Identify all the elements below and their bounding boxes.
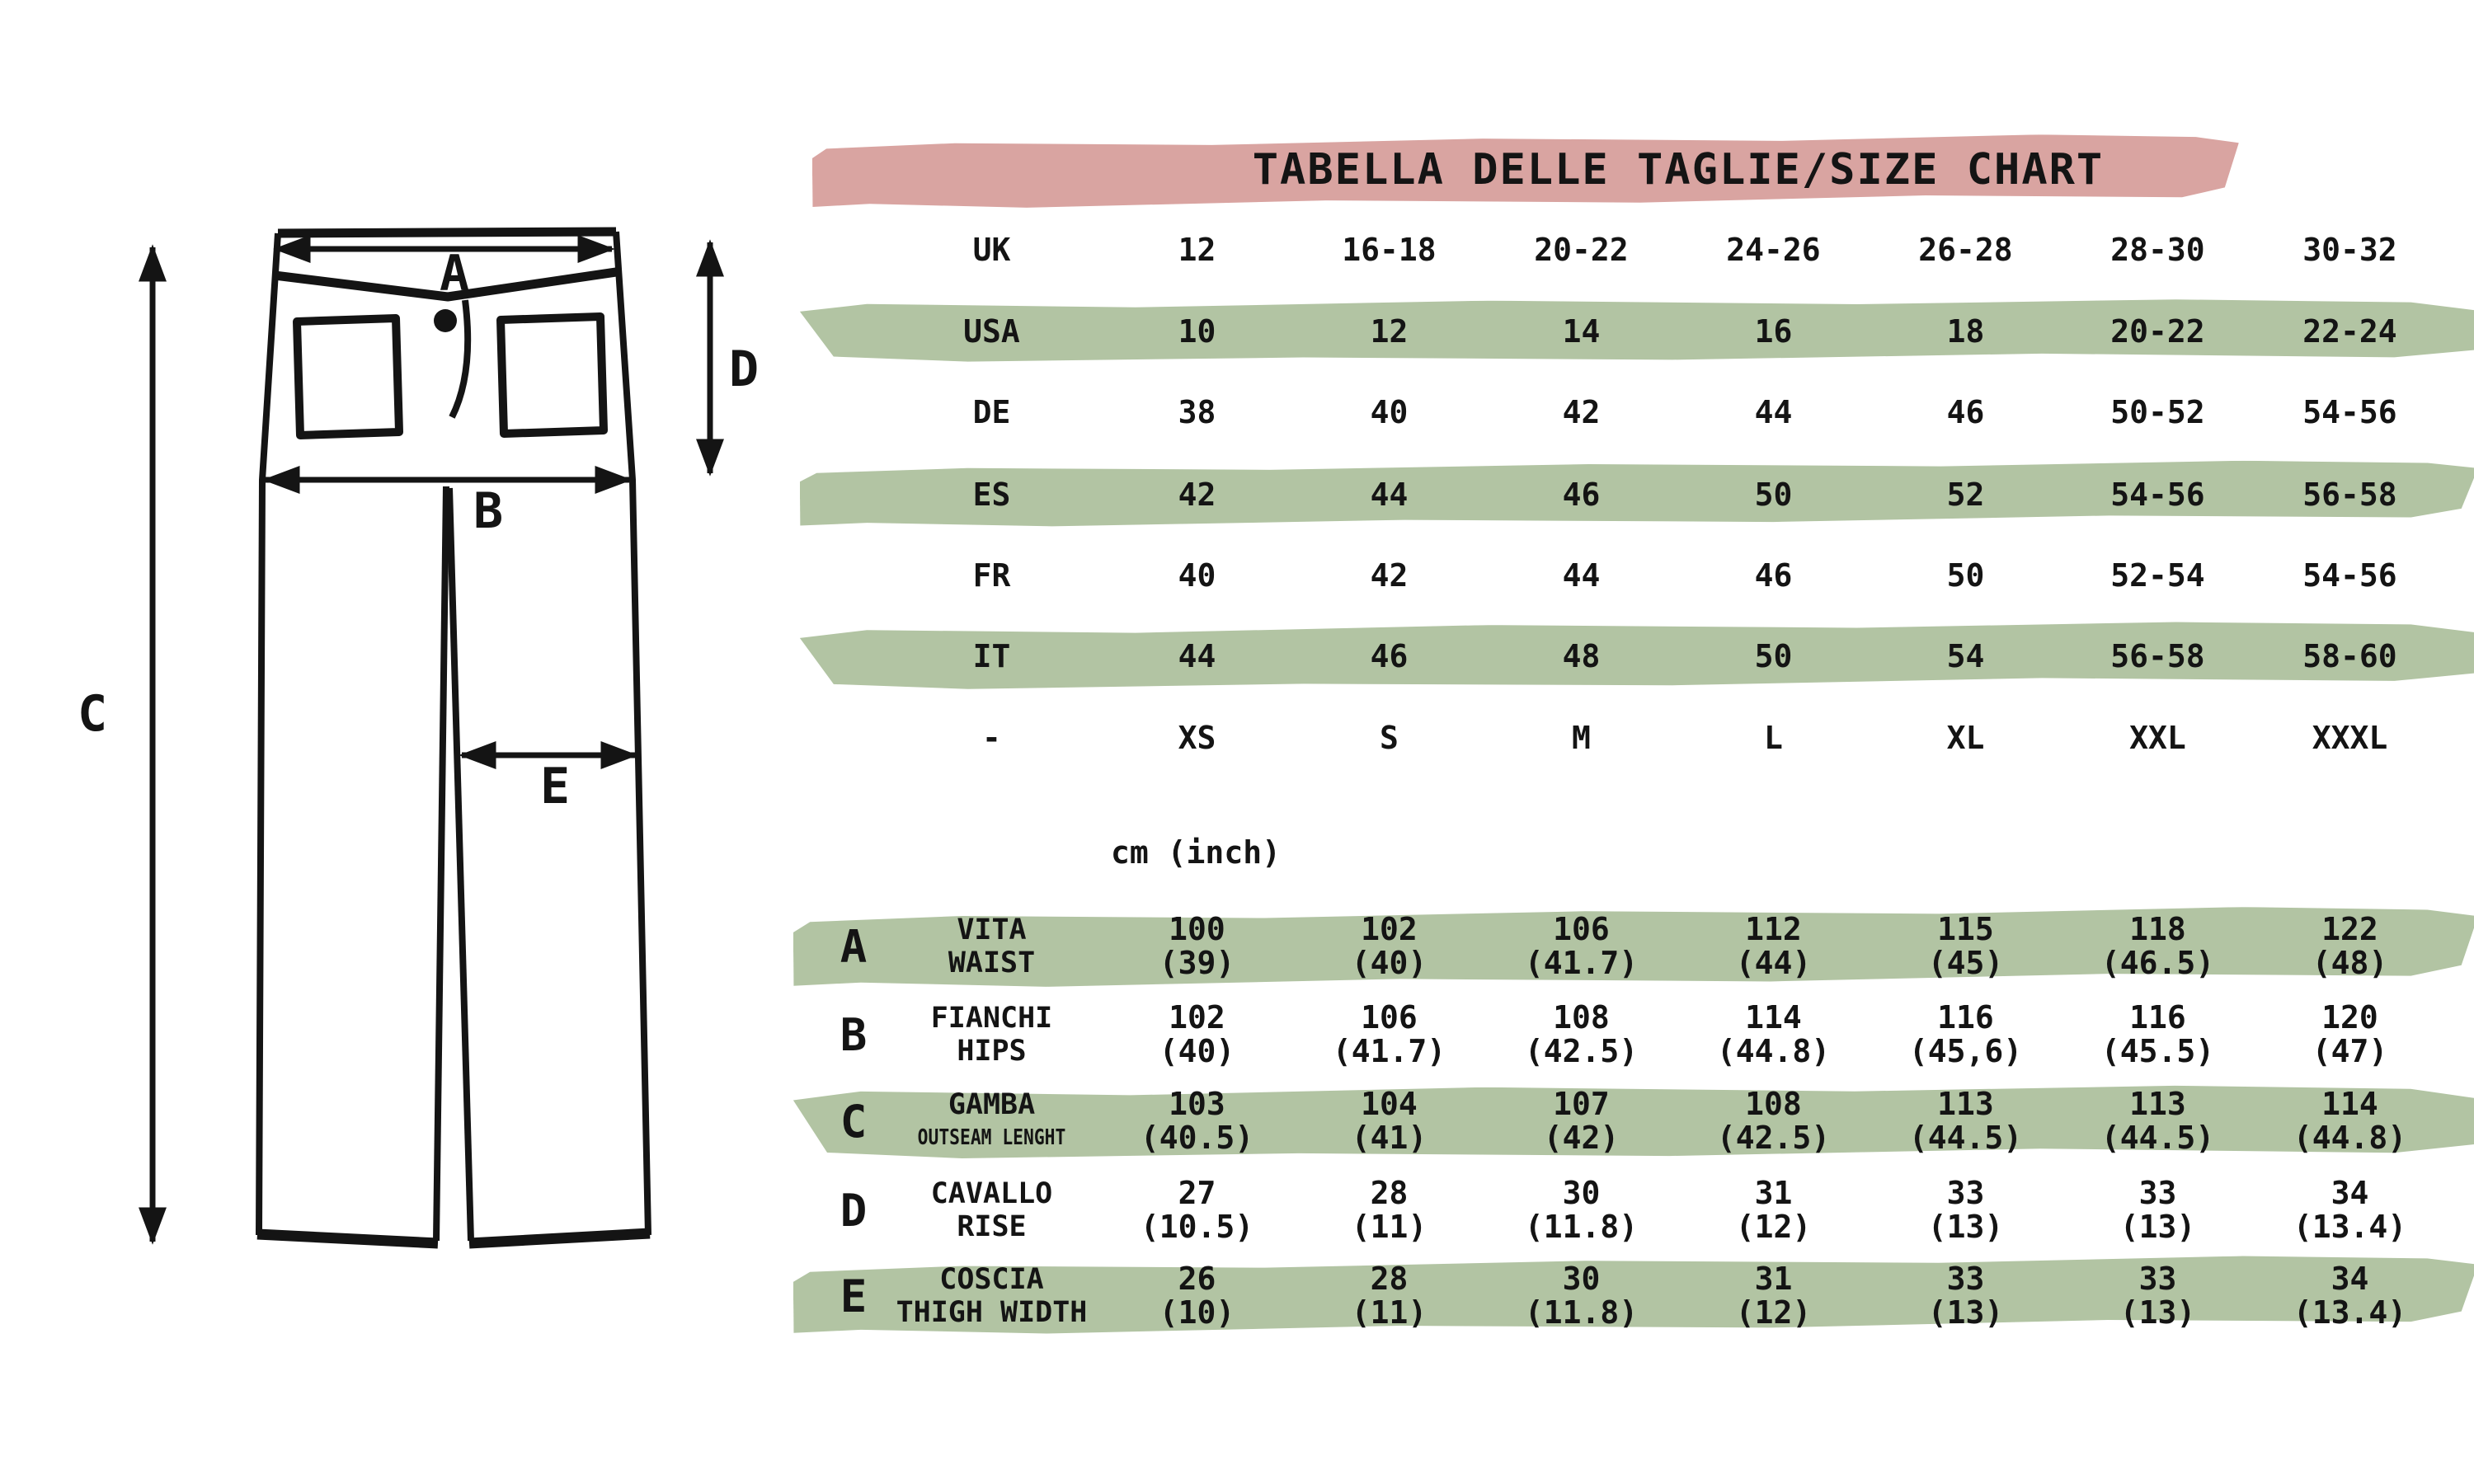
measure-row-outseam: C GAMBAOUTSEAM LENGHT 103(40.5) 104(41) … (825, 1085, 2449, 1158)
size-cell: 46 (1870, 394, 2062, 430)
measure-cell: 108(42.5) (1485, 1001, 1677, 1068)
measure-cell: 33(13) (2062, 1262, 2254, 1330)
measure-cell: 100(39) (1101, 913, 1293, 980)
size-cell: 20-22 (2062, 313, 2254, 350)
size-cell: 44 (1677, 394, 1870, 430)
size-row-uk: UK 12 16-18 20-22 24-26 26-28 28-30 30-3… (825, 218, 2449, 281)
measure-label: FIANCHIHIPS (882, 1002, 1101, 1068)
measure-cell: 102(40) (1101, 1001, 1293, 1068)
value-inch: (41.7) (1485, 946, 1677, 980)
value-cm: 33 (1870, 1176, 2062, 1210)
size-cell: 42 (1293, 557, 1485, 594)
value-inch: (42) (1485, 1121, 1677, 1155)
label-en: RISE (882, 1210, 1101, 1243)
value-inch: (12) (1677, 1210, 1870, 1244)
value-cm: 34 (2254, 1262, 2446, 1296)
region-label: USA (882, 313, 1101, 350)
size-cell: 50 (1870, 557, 2062, 594)
measure-cell: 104(41) (1293, 1087, 1485, 1155)
measure-cell: 28(11) (1293, 1176, 1485, 1244)
value-inch: (39) (1101, 946, 1293, 980)
size-cell: 54-56 (2254, 394, 2446, 430)
value-cm: 34 (2254, 1176, 2446, 1210)
size-cell: 50-52 (2062, 394, 2254, 430)
size-cell: XS (1101, 720, 1293, 756)
diagram-letter-e: E (540, 758, 570, 815)
size-cell: M (1485, 720, 1677, 756)
value-cm: 116 (1870, 1001, 2062, 1035)
value-inch: (11) (1293, 1296, 1485, 1330)
row-letter: C (825, 1096, 882, 1148)
value-cm: 26 (1101, 1262, 1293, 1296)
measure-cell: 33(13) (1870, 1176, 2062, 1244)
label-en: WAIST (882, 946, 1101, 979)
size-row-es: ES 42 44 46 50 52 54-56 56-58 (825, 463, 2449, 526)
value-cm: 31 (1677, 1176, 1870, 1210)
measure-cell: 122(48) (2254, 913, 2446, 980)
region-label: UK (882, 232, 1101, 268)
size-cell: 54-56 (2254, 557, 2446, 594)
value-inch: (13) (2062, 1210, 2254, 1244)
region-label: - (882, 720, 1101, 756)
measure-cell: 113(44.5) (2062, 1087, 2254, 1155)
measure-cell: 28(11) (1293, 1262, 1485, 1330)
measure-label: GAMBAOUTSEAM LENGHT (882, 1088, 1101, 1154)
region-label: IT (882, 638, 1101, 674)
value-cm: 112 (1677, 913, 1870, 946)
value-inch: (13.4) (2254, 1296, 2446, 1330)
value-inch: (10) (1101, 1296, 1293, 1330)
value-inch: (13) (1870, 1210, 2062, 1244)
value-cm: 30 (1485, 1262, 1677, 1296)
value-inch: (13) (1870, 1296, 2062, 1330)
measure-cell: 114(44.8) (2254, 1087, 2446, 1155)
size-cell: 24-26 (1677, 232, 1870, 268)
size-cell: 54-56 (2062, 477, 2254, 513)
value-inch: (42.5) (1485, 1035, 1677, 1068)
label-it: FIANCHI (882, 1002, 1101, 1035)
size-cell: 12 (1101, 232, 1293, 268)
value-cm: 33 (2062, 1262, 2254, 1296)
value-inch: (13) (2062, 1296, 2254, 1330)
value-cm: 120 (2254, 1001, 2446, 1035)
measure-cell: 106(41.7) (1485, 913, 1677, 980)
size-cell: S (1293, 720, 1485, 756)
value-inch: (46.5) (2062, 946, 2254, 980)
label-en: OUTSEAM LENGHT (902, 1121, 1081, 1154)
measure-row-rise: D CAVALLORISE 27(10.5) 28(11) 30(11.8) 3… (825, 1174, 2449, 1247)
value-inch: (44.5) (1870, 1121, 2062, 1155)
measure-cell: 30(11.8) (1485, 1176, 1677, 1244)
value-cm: 114 (1677, 1001, 1870, 1035)
size-cell: 44 (1485, 557, 1677, 594)
size-cell: 42 (1485, 394, 1677, 430)
measure-label: VITAWAIST (882, 913, 1101, 979)
size-cell: 44 (1101, 638, 1293, 674)
measure-cell: 102(40) (1293, 913, 1485, 980)
value-inch: (45.5) (2062, 1035, 2254, 1068)
diagram-letter-b: B (473, 482, 503, 540)
value-cm: 33 (2062, 1176, 2254, 1210)
unit-label: cm (inch) (1064, 834, 1328, 871)
region-label: FR (882, 557, 1101, 594)
size-row-fr: FR 40 42 44 46 50 52-54 54-56 (825, 544, 2449, 607)
value-cm: 104 (1293, 1087, 1485, 1121)
label-en: THIGH WIDTH (882, 1296, 1101, 1329)
value-cm: 106 (1293, 1001, 1485, 1035)
value-cm: 31 (1677, 1262, 1870, 1296)
value-cm: 28 (1293, 1176, 1485, 1210)
label-it: GAMBA (882, 1088, 1101, 1121)
size-cell: 40 (1293, 394, 1485, 430)
size-cell: 16-18 (1293, 232, 1485, 268)
inner-seam-right (449, 488, 471, 1241)
size-cell: 56-58 (2062, 638, 2254, 674)
size-cell: 56-58 (2254, 477, 2446, 513)
pocket-right (501, 317, 604, 434)
measure-cell: 34(13.4) (2254, 1262, 2446, 1330)
size-cell: XXL (2062, 720, 2254, 756)
size-cell: 46 (1677, 557, 1870, 594)
size-cell: XXXL (2254, 720, 2446, 756)
value-inch: (45) (1870, 946, 2062, 980)
size-row-usa: USA 10 12 14 16 18 20-22 22-24 (825, 300, 2449, 363)
value-inch: (48) (2254, 946, 2446, 980)
value-inch: (40) (1293, 946, 1485, 980)
size-cell: 16 (1677, 313, 1870, 350)
value-cm: 102 (1293, 913, 1485, 946)
value-inch: (44.8) (1677, 1035, 1870, 1068)
size-cell: 20-22 (1485, 232, 1677, 268)
region-label: DE (882, 394, 1101, 430)
label-en: HIPS (882, 1035, 1101, 1068)
value-inch: (10.5) (1101, 1210, 1293, 1244)
value-inch: (40.5) (1101, 1121, 1293, 1155)
diagram-letter-c: C (78, 685, 107, 743)
value-cm: 115 (1870, 913, 2062, 946)
value-inch: (44.5) (2062, 1121, 2254, 1155)
value-cm: 100 (1101, 913, 1293, 946)
measure-cell: 108(42.5) (1677, 1087, 1870, 1155)
size-cell: 44 (1293, 477, 1485, 513)
measure-cell: 116(45,6) (1870, 1001, 2062, 1068)
pants-left-outline (259, 233, 278, 1235)
value-cm: 108 (1677, 1087, 1870, 1121)
value-inch: (11.8) (1485, 1210, 1677, 1244)
size-cell: 46 (1485, 477, 1677, 513)
hem-right (469, 1233, 650, 1243)
size-cell: 14 (1485, 313, 1677, 350)
measure-cell: 26(10) (1101, 1262, 1293, 1330)
size-cell: 30-32 (2254, 232, 2446, 268)
measure-cell: 120(47) (2254, 1001, 2446, 1068)
inner-seam-left (436, 486, 446, 1241)
measure-cell: 34(13.4) (2254, 1176, 2446, 1244)
label-it: COSCIA (882, 1263, 1101, 1296)
size-cell: XL (1870, 720, 2062, 756)
label-it: CAVALLO (882, 1177, 1101, 1210)
measure-cell: 106(41.7) (1293, 1001, 1485, 1068)
hem-left (257, 1234, 438, 1243)
value-inch: (12) (1677, 1296, 1870, 1330)
value-cm: 108 (1485, 1001, 1677, 1035)
label-it: VITA (882, 913, 1101, 946)
measure-row-thigh: E COSCIATHIGH WIDTH 26(10) 28(11) 30(11.… (825, 1260, 2449, 1332)
size-cell: 22-24 (2254, 313, 2446, 350)
row-letter: D (825, 1185, 882, 1237)
size-cell: 48 (1485, 638, 1677, 674)
size-row-de: DE 38 40 42 44 46 50-52 54-56 (825, 381, 2449, 444)
measure-cell: 103(40.5) (1101, 1087, 1293, 1155)
measure-cell: 114(44.8) (1677, 1001, 1870, 1068)
size-cell: 26-28 (1870, 232, 2062, 268)
measure-row-hips: B FIANCHIHIPS 102(40) 106(41.7) 108(42.5… (825, 998, 2449, 1071)
page-title: TABELLA DELLE TAGLIE/SIZE CHART (868, 145, 2474, 195)
value-inch: (41.7) (1293, 1035, 1485, 1068)
value-cm: 113 (1870, 1087, 2062, 1121)
pants-diagram: A B C D E (0, 0, 825, 1484)
value-inch: (40) (1101, 1035, 1293, 1068)
size-cell: 40 (1101, 557, 1293, 594)
value-cm: 106 (1485, 913, 1677, 946)
measure-cell: 31(12) (1677, 1262, 1870, 1330)
measure-cell: 118(46.5) (2062, 913, 2254, 980)
row-letter: B (825, 1009, 882, 1061)
value-cm: 102 (1101, 1001, 1293, 1035)
size-cell: 54 (1870, 638, 2062, 674)
measure-cell: 30(11.8) (1485, 1262, 1677, 1330)
measure-cell: 33(13) (1870, 1262, 2062, 1330)
size-row-it: IT 44 46 48 50 54 56-58 58-60 (825, 625, 2449, 688)
diagram-letter-d: D (729, 340, 759, 398)
measure-label: COSCIATHIGH WIDTH (882, 1263, 1101, 1329)
measure-cell: 115(45) (1870, 913, 2062, 980)
pocket-left (297, 318, 399, 435)
measure-cell: 27(10.5) (1101, 1176, 1293, 1244)
measure-cell: 112(44) (1677, 913, 1870, 980)
measure-row-waist: A VITAWAIST 100(39) 102(40) 106(41.7) 11… (825, 910, 2449, 983)
value-inch: (44.8) (2254, 1121, 2446, 1155)
size-chart-page: { "title": "TABELLA DELLE TAGLIE/SIZE CH… (0, 0, 2474, 1484)
value-inch: (41) (1293, 1121, 1485, 1155)
value-cm: 116 (2062, 1001, 2254, 1035)
size-cell: 46 (1293, 638, 1485, 674)
size-cell: 50 (1677, 638, 1870, 674)
size-cell: 10 (1101, 313, 1293, 350)
size-cell: 18 (1870, 313, 2062, 350)
value-cm: 122 (2254, 913, 2446, 946)
measure-cell: 107(42) (1485, 1087, 1677, 1155)
measure-label: CAVALLORISE (882, 1177, 1101, 1243)
value-inch: (11.8) (1485, 1296, 1677, 1330)
value-cm: 107 (1485, 1087, 1677, 1121)
size-row-international: - XS S M L XL XXL XXXL (825, 707, 2449, 769)
value-inch: (11) (1293, 1210, 1485, 1244)
measure-cell: 116(45.5) (2062, 1001, 2254, 1068)
value-cm: 27 (1101, 1176, 1293, 1210)
value-cm: 30 (1485, 1176, 1677, 1210)
measure-cell: 31(12) (1677, 1176, 1870, 1244)
value-inch: (13.4) (2254, 1210, 2446, 1244)
size-cell: 58-60 (2254, 638, 2446, 674)
value-cm: 118 (2062, 913, 2254, 946)
value-inch: (47) (2254, 1035, 2446, 1068)
value-cm: 114 (2254, 1087, 2446, 1121)
size-cell: 12 (1293, 313, 1485, 350)
size-cell: 42 (1101, 477, 1293, 513)
size-cell: 38 (1101, 394, 1293, 430)
measure-cell: 113(44.5) (1870, 1087, 2062, 1155)
row-letter: E (825, 1270, 882, 1322)
waistband-top-line (278, 232, 616, 233)
size-cell: 52-54 (2062, 557, 2254, 594)
size-cell: L (1677, 720, 1870, 756)
size-cell: 52 (1870, 477, 2062, 513)
size-cell: 50 (1677, 477, 1870, 513)
size-cell: 28-30 (2062, 232, 2254, 268)
pants-right-outline (616, 232, 648, 1235)
value-inch: (45,6) (1870, 1035, 2062, 1068)
diagram-letter-a: A (440, 245, 469, 303)
button-dot (434, 309, 457, 332)
value-cm: 113 (2062, 1087, 2254, 1121)
value-cm: 28 (1293, 1262, 1485, 1296)
value-cm: 103 (1101, 1087, 1293, 1121)
value-cm: 33 (1870, 1262, 2062, 1296)
value-inch: (42.5) (1677, 1121, 1870, 1155)
row-letter: A (825, 921, 882, 973)
value-inch: (44) (1677, 946, 1870, 980)
measure-cell: 33(13) (2062, 1176, 2254, 1244)
region-label: ES (882, 477, 1101, 513)
